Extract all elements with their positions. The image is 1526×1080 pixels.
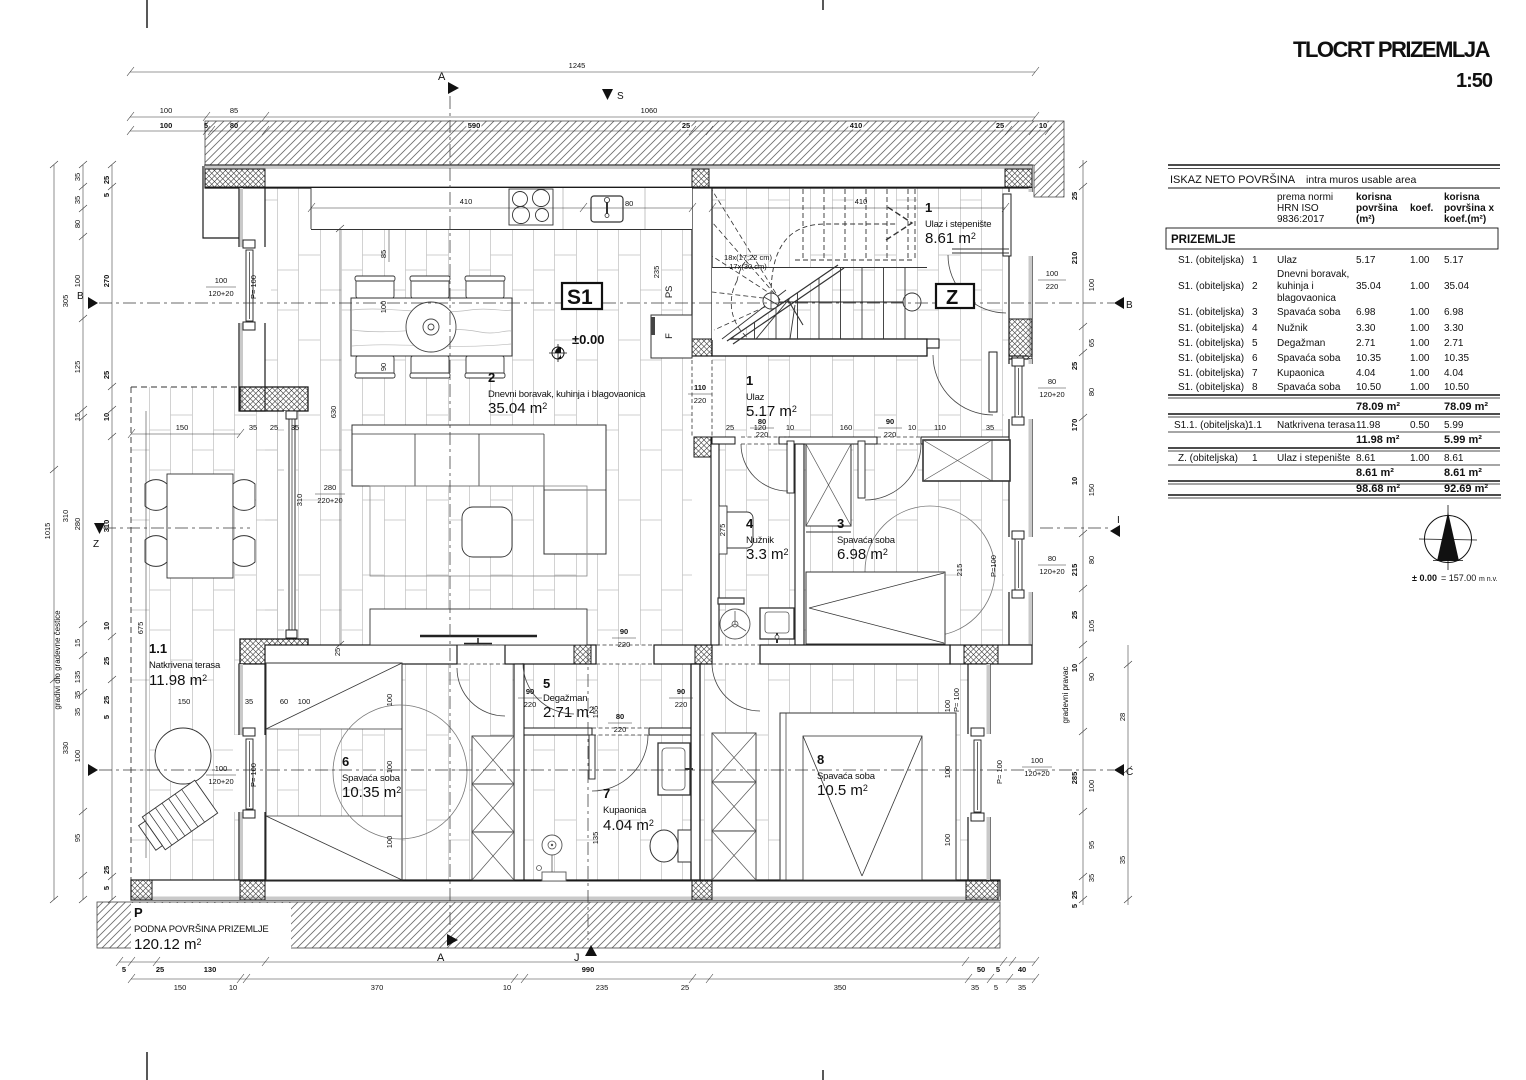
svg-text:270: 270 bbox=[102, 275, 111, 288]
svg-text:7: 7 bbox=[603, 786, 610, 801]
svg-text:Degažman: Degažman bbox=[543, 693, 587, 704]
svg-text:3.30: 3.30 bbox=[1356, 323, 1376, 334]
svg-text:8.61: 8.61 bbox=[1356, 453, 1376, 464]
svg-text:80: 80 bbox=[1048, 554, 1056, 563]
svg-text:6: 6 bbox=[342, 754, 349, 769]
svg-text:m n.v.: m n.v. bbox=[1479, 576, 1498, 583]
svg-text:(m²): (m²) bbox=[1356, 214, 1375, 225]
svg-text:25: 25 bbox=[726, 423, 734, 432]
svg-text:105: 105 bbox=[1087, 620, 1096, 633]
svg-text:10: 10 bbox=[908, 423, 916, 432]
svg-text:85: 85 bbox=[379, 250, 388, 258]
svg-text:135: 135 bbox=[591, 832, 600, 845]
svg-text:F: F bbox=[664, 333, 675, 339]
svg-text:Ulaz i stepenište: Ulaz i stepenište bbox=[925, 219, 991, 230]
svg-text:5: 5 bbox=[1252, 338, 1258, 349]
svg-text:25: 25 bbox=[682, 121, 690, 130]
svg-text:2: 2 bbox=[1252, 281, 1258, 292]
svg-text:120+20: 120+20 bbox=[1039, 567, 1064, 576]
svg-text:Spavaća soba: Spavaća soba bbox=[817, 771, 876, 782]
svg-text:120.12 m2: 120.12 m2 bbox=[134, 936, 202, 953]
svg-text:ISKAZ NETO POVRŠINA: ISKAZ NETO POVRŠINA bbox=[1170, 173, 1296, 186]
svg-text:1: 1 bbox=[746, 373, 753, 388]
svg-text:1060: 1060 bbox=[641, 106, 658, 115]
svg-text:110: 110 bbox=[694, 383, 706, 392]
svg-text:65: 65 bbox=[1087, 339, 1096, 347]
svg-text:100: 100 bbox=[1087, 279, 1096, 292]
svg-text:1:50: 1:50 bbox=[1456, 70, 1493, 92]
svg-text:P: P bbox=[134, 905, 143, 920]
svg-text:4: 4 bbox=[746, 516, 754, 531]
svg-text:S1.1. (obiteljska): S1.1. (obiteljska) bbox=[1174, 420, 1248, 431]
svg-text:1: 1 bbox=[925, 200, 932, 215]
svg-text:10.35 m2: 10.35 m2 bbox=[342, 784, 401, 801]
svg-text:8.61: 8.61 bbox=[1444, 453, 1464, 464]
svg-text:blagovaonica: blagovaonica bbox=[1277, 293, 1336, 304]
svg-text:170: 170 bbox=[1070, 419, 1079, 432]
svg-text:35: 35 bbox=[73, 691, 82, 699]
svg-text:15: 15 bbox=[73, 639, 82, 647]
svg-text:78.09 m²: 78.09 m² bbox=[1356, 401, 1400, 413]
svg-text:92.69 m²: 92.69 m² bbox=[1444, 483, 1488, 495]
svg-text:35: 35 bbox=[73, 708, 82, 716]
svg-text:215: 215 bbox=[1070, 564, 1079, 577]
svg-text:5: 5 bbox=[543, 676, 550, 691]
svg-text:100: 100 bbox=[943, 834, 952, 847]
svg-text:S1. (obiteljska): S1. (obiteljska) bbox=[1178, 382, 1244, 393]
svg-text:25: 25 bbox=[681, 983, 689, 992]
svg-text:Dnevni boravak,: Dnevni boravak, bbox=[1277, 269, 1349, 280]
svg-text:8: 8 bbox=[1252, 382, 1258, 393]
svg-text:675: 675 bbox=[136, 622, 145, 635]
svg-text:0.50: 0.50 bbox=[1410, 420, 1430, 431]
svg-text:150: 150 bbox=[178, 697, 191, 706]
svg-text:1.00: 1.00 bbox=[1410, 307, 1430, 318]
svg-text:1245: 1245 bbox=[569, 61, 586, 70]
svg-text:2.71: 2.71 bbox=[1356, 338, 1376, 349]
svg-text:35.04: 35.04 bbox=[1444, 281, 1469, 292]
svg-text:18x(17;22 cm): 18x(17;22 cm) bbox=[724, 253, 772, 262]
svg-text:100: 100 bbox=[1087, 780, 1096, 793]
svg-text:35: 35 bbox=[971, 983, 979, 992]
svg-text:korisna: korisna bbox=[1356, 192, 1392, 203]
svg-text:95: 95 bbox=[73, 834, 82, 842]
svg-text:kuhinja i: kuhinja i bbox=[1277, 281, 1314, 292]
svg-text:10: 10 bbox=[1070, 664, 1079, 672]
svg-text:370: 370 bbox=[371, 983, 384, 992]
svg-text:1: 1 bbox=[1252, 453, 1258, 464]
svg-text:S1. (obiteljska): S1. (obiteljska) bbox=[1178, 368, 1244, 379]
svg-text:235: 235 bbox=[596, 983, 609, 992]
svg-text:120+20: 120+20 bbox=[1024, 769, 1049, 778]
svg-text:1.00: 1.00 bbox=[1410, 453, 1430, 464]
svg-text:intra muros usable area: intra muros usable area bbox=[1306, 174, 1416, 186]
svg-text:4.04: 4.04 bbox=[1356, 368, 1376, 379]
svg-text:28: 28 bbox=[1118, 713, 1127, 721]
svg-text:Spavaća soba: Spavaća soba bbox=[342, 773, 401, 784]
svg-text:220: 220 bbox=[524, 700, 537, 709]
svg-text:35: 35 bbox=[73, 173, 82, 181]
svg-text:gradevni pravac: gradevni pravac bbox=[1061, 667, 1070, 724]
svg-text:TLOCRT PRIZEMLJA: TLOCRT PRIZEMLJA bbox=[1293, 37, 1491, 62]
svg-text:9836:2017: 9836:2017 bbox=[1277, 214, 1325, 225]
svg-text:100: 100 bbox=[215, 764, 228, 773]
svg-text:5.17 m2: 5.17 m2 bbox=[746, 403, 797, 420]
svg-text:630: 630 bbox=[329, 406, 338, 419]
svg-text:Natkrivena terasa: Natkrivena terasa bbox=[1277, 420, 1356, 431]
svg-text:S1. (obiteljska): S1. (obiteljska) bbox=[1178, 281, 1244, 292]
svg-text:S1: S1 bbox=[567, 286, 593, 309]
svg-text:90: 90 bbox=[526, 687, 534, 696]
svg-text:5: 5 bbox=[122, 965, 126, 974]
svg-text:8: 8 bbox=[817, 752, 824, 767]
svg-text:površina: površina bbox=[1356, 203, 1398, 214]
svg-text:8.61 m²: 8.61 m² bbox=[1356, 467, 1394, 479]
svg-text:5.17: 5.17 bbox=[1356, 255, 1376, 266]
svg-text:10.5 m2: 10.5 m2 bbox=[817, 782, 868, 799]
svg-text:Z: Z bbox=[93, 539, 99, 550]
svg-text:4.04: 4.04 bbox=[1444, 368, 1464, 379]
svg-text:Kupaonica: Kupaonica bbox=[1277, 368, 1325, 379]
svg-text:10.50: 10.50 bbox=[1444, 382, 1469, 393]
svg-text:220+20: 220+20 bbox=[317, 496, 342, 505]
svg-text:Ulaz: Ulaz bbox=[1277, 255, 1297, 266]
svg-text:350: 350 bbox=[834, 983, 847, 992]
svg-text:100: 100 bbox=[1046, 269, 1059, 278]
svg-text:10.35: 10.35 bbox=[1356, 353, 1381, 364]
svg-text:S1. (obiteljska): S1. (obiteljska) bbox=[1178, 323, 1244, 334]
svg-text:90: 90 bbox=[1087, 673, 1096, 681]
svg-text:25: 25 bbox=[102, 657, 111, 665]
svg-text:15: 15 bbox=[73, 413, 82, 421]
svg-text:100: 100 bbox=[298, 697, 311, 706]
svg-text:100: 100 bbox=[73, 750, 82, 763]
svg-text:Ulaz: Ulaz bbox=[746, 392, 765, 403]
svg-text:5.99 m²: 5.99 m² bbox=[1444, 434, 1482, 446]
svg-text:±0.00: ±0.00 bbox=[572, 332, 604, 347]
svg-text:8.61 m2: 8.61 m2 bbox=[925, 230, 976, 247]
svg-text:305: 305 bbox=[61, 295, 70, 308]
svg-text:1.00: 1.00 bbox=[1410, 323, 1430, 334]
svg-text:80: 80 bbox=[1087, 556, 1096, 564]
svg-text:5: 5 bbox=[204, 121, 208, 130]
svg-text:25: 25 bbox=[1070, 611, 1079, 619]
svg-text:410: 410 bbox=[460, 197, 473, 206]
svg-text:25: 25 bbox=[996, 121, 1004, 130]
svg-text:Spavaća soba: Spavaća soba bbox=[1277, 307, 1341, 318]
svg-text:100: 100 bbox=[379, 301, 388, 314]
svg-text:P= 100: P= 100 bbox=[995, 760, 1004, 784]
svg-text:220: 220 bbox=[694, 396, 707, 405]
svg-text:210: 210 bbox=[1070, 252, 1079, 265]
svg-text:S1. (obiteljska): S1. (obiteljska) bbox=[1178, 255, 1244, 266]
svg-text:3: 3 bbox=[837, 516, 844, 531]
svg-text:130: 130 bbox=[204, 965, 217, 974]
svg-text:4: 4 bbox=[1252, 323, 1258, 334]
svg-text:150: 150 bbox=[174, 983, 187, 992]
svg-text:25: 25 bbox=[156, 965, 164, 974]
svg-text:P= 100: P= 100 bbox=[249, 763, 258, 787]
svg-text:25: 25 bbox=[102, 696, 111, 704]
svg-text:S1. (obiteljska): S1. (obiteljska) bbox=[1178, 353, 1244, 364]
svg-text:I: I bbox=[1117, 515, 1120, 526]
svg-text:Spavaća soba: Spavaća soba bbox=[1277, 382, 1341, 393]
svg-text:Spavaća soba: Spavaća soba bbox=[837, 535, 896, 546]
svg-text:1.00: 1.00 bbox=[1410, 382, 1430, 393]
svg-text:površina x: površina x bbox=[1444, 203, 1494, 214]
svg-text:7: 7 bbox=[1252, 368, 1258, 379]
svg-text:= 157.00: = 157.00 bbox=[1441, 573, 1476, 583]
svg-text:1.00: 1.00 bbox=[1410, 255, 1430, 266]
svg-text:S1. (obiteljska): S1. (obiteljska) bbox=[1178, 338, 1244, 349]
svg-text:90: 90 bbox=[886, 417, 894, 426]
svg-text:Nužnik: Nužnik bbox=[746, 535, 774, 546]
svg-text:35: 35 bbox=[249, 423, 257, 432]
svg-text:100: 100 bbox=[160, 106, 173, 115]
svg-text:25: 25 bbox=[1070, 192, 1079, 200]
svg-text:koef.(m²): koef.(m²) bbox=[1444, 214, 1486, 225]
svg-text:8.61 m²: 8.61 m² bbox=[1444, 467, 1482, 479]
svg-text:prema normi: prema normi bbox=[1277, 192, 1333, 203]
svg-text:90: 90 bbox=[379, 363, 388, 371]
svg-text:1.00: 1.00 bbox=[1410, 368, 1430, 379]
svg-text:220: 220 bbox=[618, 640, 631, 649]
svg-text:2.71: 2.71 bbox=[1444, 338, 1464, 349]
svg-text:6.98: 6.98 bbox=[1444, 307, 1464, 318]
svg-text:40: 40 bbox=[1018, 965, 1026, 974]
svg-text:310: 310 bbox=[61, 510, 70, 523]
svg-text:220: 220 bbox=[614, 725, 627, 734]
svg-text:Dnevni boravak, kuhinja i blag: Dnevni boravak, kuhinja i blagovaonica bbox=[488, 389, 646, 400]
svg-text:17x(30 cm): 17x(30 cm) bbox=[729, 262, 767, 271]
svg-text:Nužnik: Nužnik bbox=[1277, 323, 1309, 334]
svg-text:25: 25 bbox=[1070, 891, 1079, 899]
svg-text:10: 10 bbox=[1070, 477, 1079, 485]
svg-text:410: 410 bbox=[850, 121, 863, 130]
svg-text:11.98 m²: 11.98 m² bbox=[1356, 434, 1400, 446]
svg-text:C: C bbox=[1126, 767, 1133, 778]
svg-text:6: 6 bbox=[1252, 353, 1258, 364]
svg-text:P= 100: P= 100 bbox=[249, 275, 258, 299]
svg-text:125: 125 bbox=[73, 361, 82, 374]
svg-text:5: 5 bbox=[102, 715, 111, 719]
svg-text:80: 80 bbox=[73, 220, 82, 228]
svg-text:5: 5 bbox=[1070, 904, 1079, 908]
svg-text:gradivi dio gradevne čestice: gradivi dio gradevne čestice bbox=[53, 610, 62, 710]
svg-text:1: 1 bbox=[1252, 255, 1258, 266]
svg-text:95: 95 bbox=[1087, 841, 1096, 849]
svg-text:50: 50 bbox=[977, 965, 985, 974]
svg-text:2.71 m2: 2.71 m2 bbox=[543, 704, 594, 721]
svg-text:100: 100 bbox=[385, 761, 394, 774]
svg-text:10: 10 bbox=[102, 622, 111, 630]
svg-text:100: 100 bbox=[160, 121, 173, 130]
svg-text:11.98 m2: 11.98 m2 bbox=[149, 672, 207, 689]
svg-text:35: 35 bbox=[73, 196, 82, 204]
svg-text:B: B bbox=[1126, 300, 1133, 311]
svg-text:1.00: 1.00 bbox=[1410, 281, 1430, 292]
svg-text:160: 160 bbox=[840, 423, 853, 432]
svg-text:310: 310 bbox=[295, 494, 304, 507]
svg-text:6.98 m2: 6.98 m2 bbox=[837, 546, 888, 563]
svg-text:5.99: 5.99 bbox=[1444, 420, 1464, 431]
svg-text:3.30: 3.30 bbox=[1444, 323, 1464, 334]
svg-text:100: 100 bbox=[943, 766, 952, 779]
svg-text:25: 25 bbox=[270, 423, 278, 432]
svg-text:S: S bbox=[617, 91, 624, 102]
svg-text:5.17: 5.17 bbox=[1444, 255, 1464, 266]
svg-text:2: 2 bbox=[488, 370, 495, 385]
svg-text:120+20: 120+20 bbox=[208, 777, 233, 786]
svg-text:25: 25 bbox=[102, 371, 111, 379]
svg-text:25: 25 bbox=[1070, 362, 1079, 370]
svg-text:25: 25 bbox=[102, 866, 111, 874]
svg-text:275: 275 bbox=[718, 524, 727, 537]
svg-text:10: 10 bbox=[102, 413, 111, 421]
svg-text:410: 410 bbox=[855, 197, 868, 206]
svg-text:35: 35 bbox=[1087, 874, 1096, 882]
svg-text:150: 150 bbox=[176, 423, 189, 432]
svg-text:10: 10 bbox=[1039, 121, 1047, 130]
svg-text:280: 280 bbox=[73, 518, 82, 531]
svg-text:220: 220 bbox=[1046, 282, 1059, 291]
svg-text:35.04: 35.04 bbox=[1356, 281, 1381, 292]
svg-text:5: 5 bbox=[102, 886, 111, 890]
svg-text:35.04 m2: 35.04 m2 bbox=[488, 400, 547, 417]
svg-text:± 0.00: ± 0.00 bbox=[1412, 573, 1437, 583]
svg-text:80: 80 bbox=[1048, 377, 1056, 386]
svg-text:5: 5 bbox=[994, 983, 998, 992]
svg-text:PRIZEMLJE: PRIZEMLJE bbox=[1171, 234, 1236, 246]
svg-text:35: 35 bbox=[245, 697, 253, 706]
svg-text:990: 990 bbox=[582, 965, 595, 974]
svg-text:5: 5 bbox=[996, 965, 1000, 974]
svg-text:35: 35 bbox=[291, 423, 299, 432]
svg-text:S1. (obiteljska): S1. (obiteljska) bbox=[1178, 307, 1244, 318]
svg-text:A: A bbox=[438, 71, 446, 83]
svg-text:155: 155 bbox=[591, 706, 600, 719]
svg-text:Z: Z bbox=[946, 287, 958, 309]
svg-text:78.09 m²: 78.09 m² bbox=[1444, 401, 1488, 413]
svg-text:6.98: 6.98 bbox=[1356, 307, 1376, 318]
svg-text:1.1: 1.1 bbox=[149, 641, 167, 656]
svg-text:80: 80 bbox=[625, 199, 633, 208]
svg-text:PS: PS bbox=[664, 286, 675, 298]
svg-text:25: 25 bbox=[102, 176, 111, 184]
svg-text:590: 590 bbox=[468, 121, 481, 130]
svg-text:1.1: 1.1 bbox=[1248, 420, 1262, 431]
svg-text:1015: 1015 bbox=[43, 523, 52, 540]
svg-text:P=100: P=100 bbox=[989, 555, 998, 577]
svg-text:90: 90 bbox=[677, 687, 685, 696]
svg-text:35: 35 bbox=[1018, 983, 1026, 992]
svg-text:80: 80 bbox=[616, 712, 624, 721]
svg-text:Degažman: Degažman bbox=[1277, 338, 1325, 349]
svg-text:35: 35 bbox=[1118, 856, 1127, 864]
svg-text:PODNA POVRŠINA PRIZEMLJE: PODNA POVRŠINA PRIZEMLJE bbox=[134, 924, 269, 935]
svg-text:100: 100 bbox=[215, 276, 228, 285]
svg-text:120+20: 120+20 bbox=[1039, 390, 1064, 399]
svg-text:80: 80 bbox=[230, 121, 238, 130]
svg-text:10: 10 bbox=[229, 983, 237, 992]
svg-text:60: 60 bbox=[280, 697, 288, 706]
svg-text:11.98: 11.98 bbox=[1356, 420, 1381, 431]
svg-text:100: 100 bbox=[943, 700, 952, 713]
svg-text:135: 135 bbox=[73, 671, 82, 684]
svg-text:1.00: 1.00 bbox=[1410, 338, 1430, 349]
svg-text:koef.: koef. bbox=[1410, 203, 1434, 214]
svg-text:HRN ISO: HRN ISO bbox=[1277, 203, 1319, 214]
svg-text:10.35: 10.35 bbox=[1444, 353, 1469, 364]
svg-text:35: 35 bbox=[986, 423, 994, 432]
svg-text:100: 100 bbox=[1031, 756, 1044, 765]
svg-text:235: 235 bbox=[652, 266, 661, 279]
svg-text:Natkrivena terasa: Natkrivena terasa bbox=[149, 660, 221, 671]
svg-text:10: 10 bbox=[786, 423, 794, 432]
svg-text:Spavaća soba: Spavaća soba bbox=[1277, 353, 1341, 364]
svg-text:215: 215 bbox=[955, 564, 964, 577]
svg-text:280: 280 bbox=[324, 483, 337, 492]
svg-text:4.04 m2: 4.04 m2 bbox=[603, 817, 654, 834]
svg-text:100: 100 bbox=[73, 275, 82, 288]
svg-text:10: 10 bbox=[503, 983, 511, 992]
svg-text:90: 90 bbox=[620, 627, 628, 636]
svg-text:220: 220 bbox=[884, 430, 897, 439]
svg-text:korisna: korisna bbox=[1444, 192, 1480, 203]
svg-text:3: 3 bbox=[1252, 307, 1258, 318]
svg-text:100: 100 bbox=[385, 836, 394, 849]
svg-text:98.68 m²: 98.68 m² bbox=[1356, 483, 1400, 495]
svg-text:25: 25 bbox=[333, 648, 342, 656]
svg-text:110: 110 bbox=[934, 423, 946, 432]
svg-text:120+20: 120+20 bbox=[208, 289, 233, 298]
svg-text:Kupaonica: Kupaonica bbox=[603, 805, 647, 816]
svg-text:80: 80 bbox=[1087, 388, 1096, 396]
svg-text:100: 100 bbox=[385, 694, 394, 707]
svg-text:220: 220 bbox=[675, 700, 688, 709]
svg-text:5: 5 bbox=[102, 193, 111, 197]
svg-text:Ulaz i stepenište: Ulaz i stepenište bbox=[1277, 453, 1351, 464]
svg-text:Z. (obiteljska): Z. (obiteljska) bbox=[1178, 453, 1238, 464]
svg-text:150: 150 bbox=[1087, 484, 1096, 497]
svg-text:330: 330 bbox=[61, 742, 70, 755]
svg-text:120: 120 bbox=[754, 423, 767, 432]
svg-text:85: 85 bbox=[230, 106, 238, 115]
svg-text:10.50: 10.50 bbox=[1356, 382, 1381, 393]
svg-text:3.3 m2: 3.3 m2 bbox=[746, 546, 789, 563]
svg-text:285: 285 bbox=[1070, 772, 1079, 785]
svg-text:1.00: 1.00 bbox=[1410, 353, 1430, 364]
svg-text:P= 100: P= 100 bbox=[952, 688, 961, 712]
svg-text:310: 310 bbox=[102, 520, 111, 533]
